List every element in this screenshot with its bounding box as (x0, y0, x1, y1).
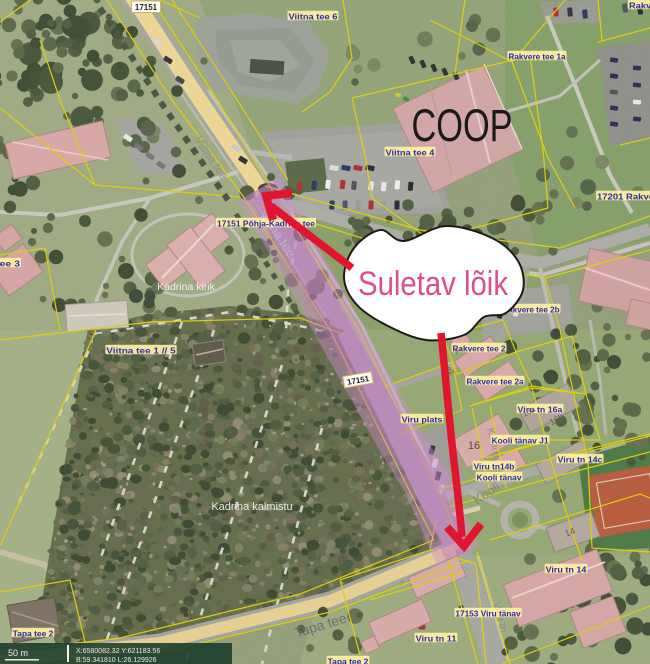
svg-text:Viru tn 14: Viru tn 14 (546, 565, 587, 575)
svg-text:Rakvere tee: Rakvere tee (629, 1, 650, 11)
svg-text:Viitna tee 6: Viitna tee 6 (289, 12, 338, 22)
svg-text:Kooli tänav J1: Kooli tänav J1 (491, 436, 548, 446)
svg-text:17151: 17151 (135, 3, 158, 12)
svg-text:tee 3: tee 3 (0, 259, 20, 269)
svg-text:Viitna tee 1 // 5: Viitna tee 1 // 5 (106, 346, 176, 356)
svg-text:Kadrina kalmistu: Kadrina kalmistu (211, 501, 292, 513)
svg-text:Tapa tee 2: Tapa tee 2 (328, 657, 369, 664)
svg-text:Suletav lõik: Suletav lõik (358, 265, 509, 303)
svg-text:Viru tn 14c: Viru tn 14c (558, 455, 603, 465)
svg-text:Kadrina kirik: Kadrina kirik (157, 281, 216, 293)
svg-text:50 m: 50 m (8, 648, 28, 658)
svg-text:16: 16 (468, 440, 480, 452)
svg-text:17153 Viru tänav: 17153 Viru tänav (455, 609, 521, 619)
svg-text:X:6580082.32 Y:621183.56: X:6580082.32 Y:621183.56 (76, 648, 160, 655)
svg-text:COOP: COOP (412, 100, 513, 151)
svg-text:Kooli tänav: Kooli tänav (477, 473, 522, 483)
svg-text:Viru tn 11: Viru tn 11 (416, 634, 457, 644)
svg-text:Viru tn14b: Viru tn14b (474, 462, 515, 472)
svg-text:Tapa tee 2: Tapa tee 2 (13, 629, 54, 639)
svg-text:Viru plats: Viru plats (402, 415, 443, 425)
svg-text:Rakvere tee 1a: Rakvere tee 1a (508, 52, 565, 62)
svg-text:17201 Rakvere: 17201 Rakvere (597, 192, 650, 202)
svg-text:B:59.341810 L:26.129926: B:59.341810 L:26.129926 (76, 657, 157, 664)
svg-text:Rakvere tee 2a: Rakvere tee 2a (466, 377, 523, 387)
